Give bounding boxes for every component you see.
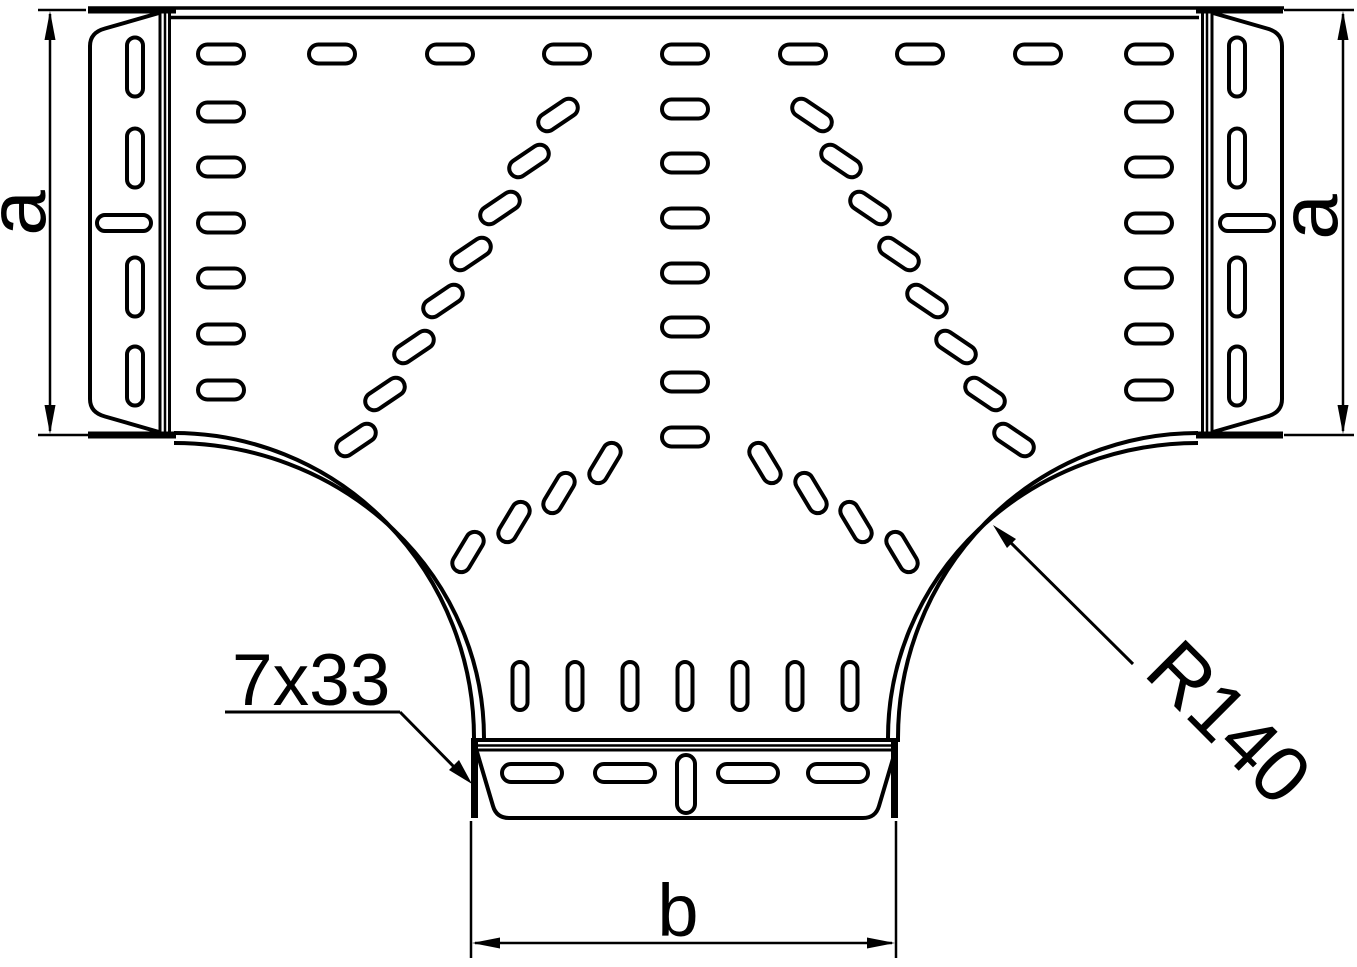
- left-outer-fan-slot: [477, 188, 524, 228]
- bottom-flange-outline: [477, 752, 895, 818]
- branch-row-slot: [513, 662, 528, 710]
- slot-callout-label: 7x33: [232, 640, 390, 721]
- top-row-slot: [198, 45, 244, 64]
- left-flange-vslot-slot: [127, 347, 143, 406]
- center-column-slot: [662, 428, 708, 447]
- bottom-flange-hslot-slot: [502, 764, 562, 782]
- center-column-slot: [662, 318, 708, 337]
- callout-leader-line: [400, 712, 462, 775]
- top-row-slot: [544, 45, 590, 64]
- left-flange-vslot-slot: [127, 258, 143, 317]
- right-column-slot: [1126, 381, 1172, 400]
- top-row-slot: [309, 45, 355, 64]
- right-flange-vslot-slot: [1229, 258, 1245, 317]
- right-outer-fan-slot: [847, 188, 894, 228]
- right-outer-fan-slot: [789, 95, 836, 135]
- left-outer-fan-slot: [391, 327, 438, 367]
- left-column-slot: [198, 103, 244, 122]
- branch-row-slot: [623, 662, 638, 710]
- branch-row-slot: [678, 662, 693, 710]
- center-column-slot: [662, 209, 708, 228]
- arrowhead-right-icon: [867, 938, 895, 949]
- branch-row-slot: [788, 662, 803, 710]
- center-column-slot: [662, 154, 708, 173]
- bottom-flange-vslot-slot: [677, 755, 695, 813]
- right-flange-vslot-slot: [1229, 38, 1245, 97]
- right-outer-fan-slot: [904, 281, 951, 321]
- top-row-slot: [427, 45, 473, 64]
- right-column-slot: [1126, 158, 1172, 177]
- drawing-canvas: a a b 7x33 R140: [0, 0, 1357, 967]
- dimension-a-right: a: [1264, 10, 1355, 435]
- left-outer-fan-slot: [333, 420, 380, 460]
- left-flange-outline: [90, 13, 159, 432]
- branch-row-slot: [568, 662, 583, 710]
- left-outer-fan-slot: [535, 95, 582, 135]
- arrowhead-left-icon: [472, 938, 500, 949]
- left-column-slot: [198, 381, 244, 400]
- arrowhead-down-icon: [1338, 405, 1349, 434]
- top-row-slot: [1126, 45, 1172, 64]
- left-column-slot: [198, 214, 244, 233]
- right-outer-fan-slot: [818, 141, 865, 181]
- center-column-slot: [662, 264, 708, 283]
- right-outer-fan-slot: [962, 374, 1009, 414]
- right-flange-vslot-slot: [1229, 129, 1245, 188]
- arrowhead-up-icon: [1338, 11, 1349, 40]
- dimension-a-left: a: [0, 10, 88, 435]
- center-column-slot: [662, 100, 708, 119]
- right-inner-fan-slot: [792, 470, 830, 517]
- left-outer-fan-slot: [362, 374, 409, 414]
- right-outer-fan-slot: [991, 420, 1038, 460]
- dimension-a-left-label: a: [0, 190, 63, 236]
- right-outer-fan-slot: [933, 327, 980, 367]
- bottom-flange-hslot-slot: [595, 764, 655, 782]
- right-inner-fan-slot: [883, 529, 921, 576]
- top-row-slot: [897, 45, 943, 64]
- bottom-flange-hslot-slot: [718, 764, 778, 782]
- callout-r140: R140: [993, 525, 1328, 821]
- left-outer-fan-slot: [448, 234, 495, 274]
- left-inner-fan-slot: [449, 529, 487, 576]
- right-flange-vslot-slot: [1229, 347, 1245, 406]
- left-column-slot: [198, 158, 244, 177]
- top-row-slot: [662, 45, 708, 64]
- right-column-slot: [1126, 103, 1172, 122]
- left-outer-fan-slot: [420, 281, 467, 321]
- callout-7x33: 7x33: [225, 640, 472, 784]
- left-outer-fan-slot: [506, 141, 553, 181]
- center-column-slot: [662, 373, 708, 392]
- left-column-slot: [198, 325, 244, 344]
- flange-hslot-slot: [97, 215, 151, 231]
- top-row-slot: [780, 45, 826, 64]
- left-flange: [90, 8, 170, 437]
- bottom-flange: [471, 740, 900, 818]
- right-column-slot: [1126, 325, 1172, 344]
- dimension-b-label: b: [657, 869, 698, 952]
- left-inner-fan-slot: [540, 470, 578, 517]
- radius-callout-label: R140: [1130, 623, 1328, 821]
- branch-row-slot: [733, 662, 748, 710]
- right-inner-fan-slot: [837, 499, 875, 546]
- left-inner-fan-slot: [586, 440, 624, 487]
- branch-row-slot: [843, 662, 858, 710]
- right-column-slot: [1126, 214, 1172, 233]
- arrowhead-up-icon: [45, 11, 56, 40]
- left-column-slot: [198, 269, 244, 288]
- dimension-a-right-label: a: [1264, 194, 1355, 240]
- left-flange-vslot-slot: [127, 38, 143, 97]
- arrowhead-down-icon: [45, 405, 56, 434]
- right-outer-fan-slot: [876, 234, 923, 274]
- t-piece-drawing: a a b 7x33 R140: [0, 0, 1357, 967]
- left-inner-fan-slot: [495, 499, 533, 546]
- radius-leader-line: [999, 531, 1133, 664]
- left-flange-vslot-slot: [127, 129, 143, 188]
- bottom-flange-hslot-slot: [808, 764, 868, 782]
- dimension-b: b: [471, 821, 896, 958]
- right-column-slot: [1126, 269, 1172, 288]
- right-inner-fan-slot: [746, 440, 784, 487]
- top-row-slot: [1015, 45, 1061, 64]
